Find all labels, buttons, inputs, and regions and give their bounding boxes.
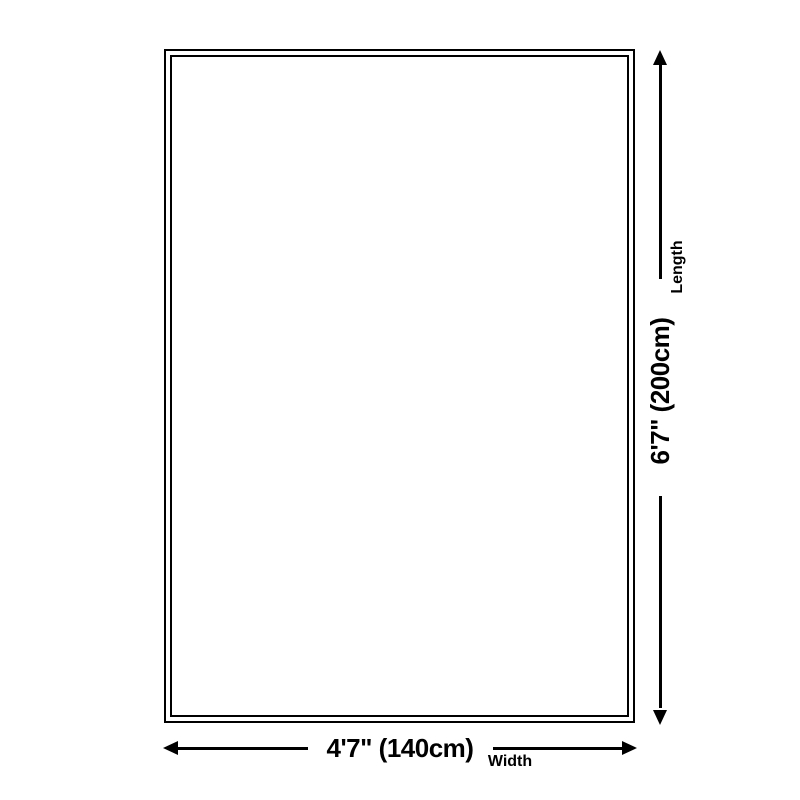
width-label: Width: [488, 754, 532, 770]
arrow-left-icon: [163, 741, 178, 755]
length-value: 6'7" (200cm): [647, 318, 673, 465]
rug-outline: [164, 49, 635, 723]
length-label: Length: [670, 240, 686, 293]
width-arrow-line-right: [493, 747, 623, 750]
width-value: 4'7" (140cm): [327, 735, 474, 761]
length-arrow-line-bottom: [659, 496, 662, 708]
length-arrow-line-top: [659, 63, 662, 279]
width-arrow-line-left: [178, 747, 308, 750]
rug-inner-border: [170, 55, 629, 717]
arrow-right-icon: [622, 741, 637, 755]
rug-dimension-diagram: 6'7" (200cm) Length 4'7" (140cm) Width: [0, 0, 800, 800]
arrow-down-icon: [653, 710, 667, 725]
